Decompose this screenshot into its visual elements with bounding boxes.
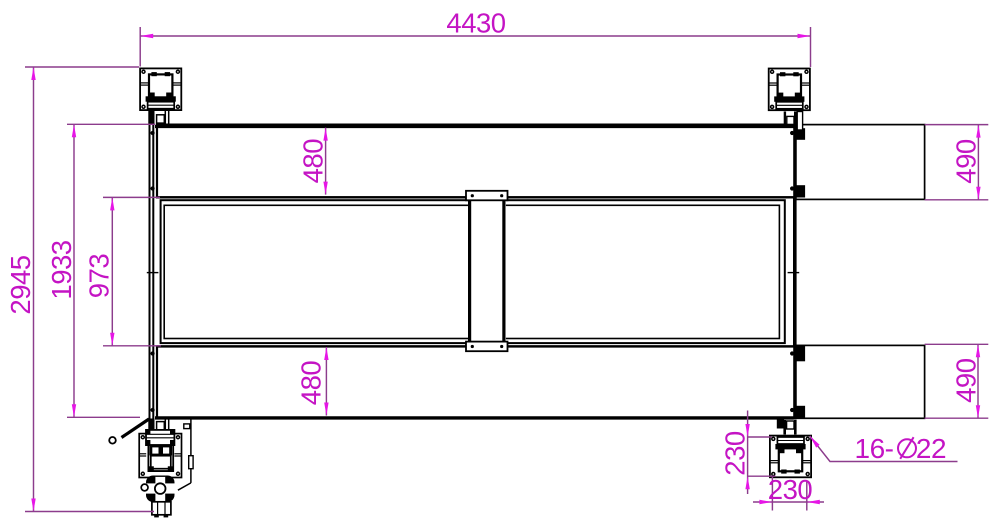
svg-text:490: 490 <box>950 139 981 184</box>
svg-text:230: 230 <box>768 474 813 505</box>
svg-text:480: 480 <box>297 139 328 184</box>
svg-text:1933: 1933 <box>46 240 77 299</box>
svg-text:230: 230 <box>720 431 751 476</box>
svg-text:22: 22 <box>916 433 946 464</box>
svg-text:490: 490 <box>950 358 981 403</box>
svg-text:4430: 4430 <box>446 8 505 39</box>
svg-text:2945: 2945 <box>5 255 36 314</box>
svg-text:16-: 16- <box>855 433 894 464</box>
svg-text:480: 480 <box>296 361 327 406</box>
svg-text:973: 973 <box>84 254 115 299</box>
